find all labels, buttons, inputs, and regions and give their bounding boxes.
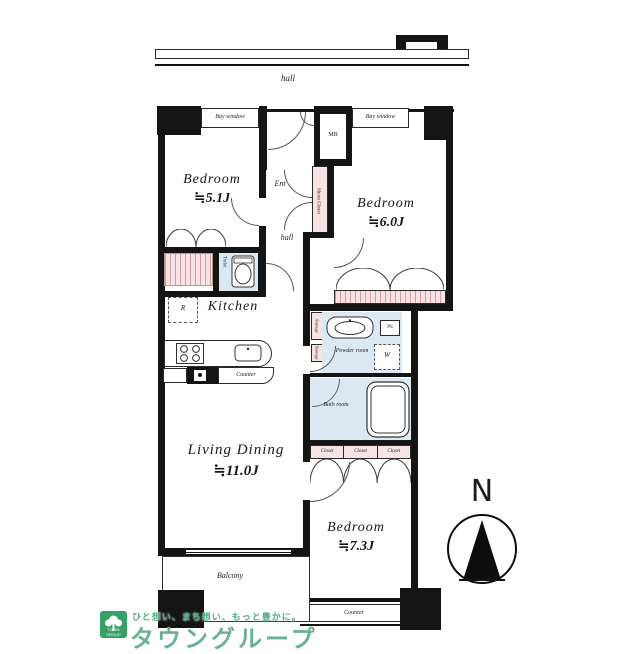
living-window-line — [186, 552, 291, 553]
washer-label: W — [374, 352, 400, 359]
town-group-logo: TOWN GROUP — [100, 611, 127, 638]
powder-room-label: Powder room — [330, 348, 374, 354]
storage-label: Storage — [314, 313, 319, 339]
shoes-door-arc — [284, 202, 312, 230]
room-label-bedroom-large: Bedroom ≒7.3J — [312, 520, 400, 555]
corridor-strip — [155, 49, 469, 59]
kitchen-label: Kitchen — [192, 300, 274, 315]
pipe-space-label: PS — [380, 325, 400, 330]
bedroom-small-name: Bedroom — [168, 172, 256, 188]
bedroom-large-area: ≒7.3J — [312, 538, 400, 555]
toilet-label: Toilet — [221, 256, 226, 288]
refrigerator-label: R — [168, 305, 198, 312]
wall-segment — [328, 166, 334, 238]
watermark-company: タウングループ — [130, 619, 318, 654]
compass-north-label: N — [462, 474, 502, 509]
bedroom-large-door-arc — [310, 462, 350, 502]
compass-baseline — [459, 579, 505, 581]
closet-cell: Closet — [310, 445, 344, 459]
closet-hanger-arcs — [166, 229, 226, 247]
corridor-line — [155, 64, 469, 66]
kitchen-counter-label: Counter — [218, 372, 274, 378]
floor-plan: hall Bay window Bay window MB Ent Shoes … — [0, 0, 640, 640]
wall-segment — [259, 166, 266, 198]
wall-segment — [303, 238, 310, 346]
counter-return — [163, 368, 187, 383]
compass-needle — [463, 520, 501, 580]
corridor-hall-label: hall — [268, 74, 308, 83]
bedroom-mid-closet — [334, 290, 446, 304]
wall-segment — [310, 373, 411, 377]
balcony-label: Balcony — [190, 572, 270, 580]
toilet-bowl-icon — [231, 255, 255, 288]
logo-caption: TOWN GROUP — [100, 627, 127, 637]
bedroom-small-closet — [164, 253, 213, 286]
living-area: ≒11.0J — [170, 461, 302, 480]
wall-left — [158, 106, 165, 556]
shoes-door-arc — [284, 170, 312, 198]
wall-segment — [303, 304, 453, 311]
closet-hanger-arcs — [336, 268, 444, 290]
bedroom-large-name: Bedroom — [312, 520, 400, 536]
bedroom-mid-door-arc — [334, 238, 364, 268]
wall-segment — [303, 374, 310, 462]
room-label-bedroom-mid: Bedroom ≒6.0J — [340, 196, 432, 231]
bedroom-mid-area: ≒6.0J — [340, 214, 432, 231]
living-name: Living Dining — [170, 442, 302, 459]
sink-icon — [234, 344, 262, 362]
bedroom-small-door-arc — [231, 198, 259, 226]
kitchen-pillar-dot — [198, 373, 202, 377]
bath-room-label: Bath room — [316, 402, 356, 408]
wall-right-lower — [411, 311, 418, 603]
bedroom-counter-label: Counter — [302, 610, 406, 616]
wall-right — [446, 106, 453, 311]
closet-cell: Closet — [344, 445, 377, 459]
wall-segment — [303, 598, 413, 602]
toilet-door-arc — [266, 263, 294, 291]
bay-window-right-label: Bay window — [352, 114, 409, 120]
washbasin-icon — [326, 316, 374, 339]
inner-hall-label: hall — [272, 234, 302, 242]
mb-label: MB — [320, 132, 346, 138]
room-label-living: Living Dining ≒11.0J — [170, 442, 302, 480]
bathtub-icon — [366, 381, 410, 438]
closet-cell: Closet — [378, 445, 411, 459]
wall-segment — [258, 247, 266, 297]
bedroom-mid-name: Bedroom — [340, 196, 432, 212]
bedroom-large-closet: Closet Closet Closet — [310, 445, 411, 459]
wall-segment — [259, 106, 267, 170]
stove-icon — [176, 343, 204, 364]
shoes-closet-label: Shoes Closet — [315, 170, 320, 232]
bay-window-left-label: Bay window — [201, 114, 259, 120]
pillar-bottom-right — [400, 588, 441, 630]
